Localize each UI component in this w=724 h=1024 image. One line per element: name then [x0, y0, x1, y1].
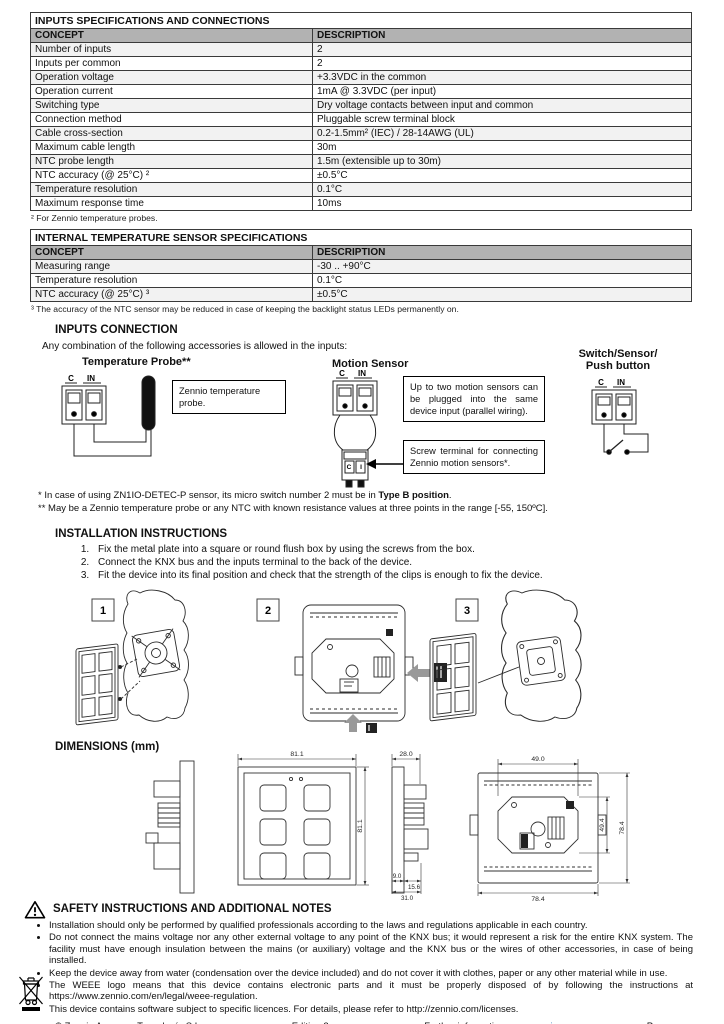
safety-bullets: Installation should only be performed by…	[40, 920, 693, 1015]
installation-step: Fit the device into its final position a…	[92, 570, 724, 581]
table-title: INTERNAL TEMPERATURE SENSOR SPECIFICATIO…	[31, 230, 692, 246]
figure-number: 1	[100, 605, 106, 617]
dimensions-drawing: 81.1 81.1 28.0 9.0 15.6 31.	[0, 733, 724, 901]
cell-description: Pluggable screw terminal block	[313, 113, 692, 127]
col-header-concept: CONCEPT	[31, 246, 313, 260]
warning-icon	[24, 900, 46, 919]
document-page: INPUTS SPECIFICATIONS AND CONNECTIONS CO…	[0, 0, 724, 1024]
col-header-description: DESCRIPTION	[313, 246, 692, 260]
svg-text:IN: IN	[358, 369, 366, 378]
dim-front-height: 81.1	[357, 819, 364, 832]
weee-bin-icon	[18, 973, 44, 1013]
cell-concept: Operation current	[31, 85, 313, 99]
installation-heading: INSTALLATION INSTRUCTIONS	[55, 528, 724, 540]
installation-figures-drawing: 1 2 3	[0, 583, 724, 733]
inputs-connection-diagrams: Temperature Probe** Motion Sensor Switch…	[0, 354, 724, 488]
safety-section: SAFETY INSTRUCTIONS AND ADDITIONAL NOTES…	[0, 901, 724, 1015]
cell-description: 0.2-1.5mm² (IEC) / 28-14AWG (UL)	[313, 127, 692, 141]
table-footnote: ² For Zennio temperature probes.	[31, 213, 724, 223]
dim-back-plate-width: 49.0	[531, 756, 544, 763]
note-arrow-icon	[366, 457, 403, 471]
inputs-spec-table: INPUTS SPECIFICATIONS AND CONNECTIONS CO…	[30, 12, 692, 211]
installation-steps: Fix the metal plate into a square or rou…	[0, 544, 724, 581]
cell-concept: Switching type	[31, 99, 313, 113]
cell-concept: Inputs per common	[31, 57, 313, 71]
svg-text:C: C	[68, 374, 74, 383]
cell-description: -30 .. +90°C	[313, 260, 692, 274]
motion-sensor-note-top: Up to two motion sensors can be plugged …	[403, 376, 545, 422]
cell-concept: NTC probe length	[31, 155, 313, 169]
cell-description: 1mA @ 3.3VDC (per input)	[313, 85, 692, 99]
svg-text:C: C	[347, 464, 352, 471]
dim-side-body: 15.6	[408, 884, 421, 891]
cell-concept: Maximum response time	[31, 197, 313, 211]
installation-step: Connect the KNX bus and the inputs termi…	[92, 557, 724, 568]
cell-description: 1.5m (extensible up to 30m)	[313, 155, 692, 169]
table-row: NTC accuracy (@ 25°C) ²±0.5°C	[31, 169, 692, 183]
cell-description: 0.1°C	[313, 274, 692, 288]
connection-footnote-1: * In case of using ZN1IO-DETEC-P sensor,…	[38, 490, 724, 501]
table-row: Measuring range-30 .. +90°C	[31, 260, 692, 274]
table-row: Cable cross-section0.2-1.5mm² (IEC) / 28…	[31, 127, 692, 141]
cell-description: 2	[313, 43, 692, 57]
table-row: Maximum response time10ms	[31, 197, 692, 211]
cell-description: 0.1°C	[313, 183, 692, 197]
switch-diagram: C IN	[588, 376, 668, 468]
svg-text:C: C	[598, 378, 604, 387]
table-row: Temperature resolution0.1°C	[31, 183, 692, 197]
table-row: Connection methodPluggable screw termina…	[31, 113, 692, 127]
col-header-description: DESCRIPTION	[313, 29, 692, 43]
dim-back-height: 78.4	[619, 821, 626, 834]
inputs-connection-heading: INPUTS CONNECTION	[55, 324, 724, 336]
figure-number: 2	[265, 605, 271, 617]
cell-concept: Temperature resolution	[31, 274, 313, 288]
svg-text:I: I	[360, 464, 362, 471]
cell-concept: NTC accuracy (@ 25°C) ³	[31, 288, 313, 302]
cell-concept: Number of inputs	[31, 43, 313, 57]
table-row: Switching typeDry voltage contacts betwe…	[31, 99, 692, 113]
table-row: NTC probe length1.5m (extensible up to 3…	[31, 155, 692, 169]
svg-text:C: C	[339, 369, 345, 378]
table-row: Inputs per common2	[31, 57, 692, 71]
col-header-concept: CONCEPT	[31, 29, 313, 43]
table-footnote: ³ The accuracy of the NTC sensor may be …	[31, 304, 724, 314]
dim-front-width: 81.1	[290, 751, 303, 758]
dimensions-section: DIMENSIONS (mm)	[0, 733, 724, 901]
svg-text:IN: IN	[87, 374, 95, 383]
cell-concept: Cable cross-section	[31, 127, 313, 141]
table-row: Maximum cable length30m	[31, 141, 692, 155]
table-title: INPUTS SPECIFICATIONS AND CONNECTIONS	[31, 13, 692, 29]
figure-number: 3	[464, 605, 470, 617]
dim-side-bezel: 9.0	[393, 873, 402, 880]
switch-sensor-title: Switch/Sensor/ Push button	[558, 348, 678, 372]
cell-concept: Operation voltage	[31, 71, 313, 85]
cell-concept: NTC accuracy (@ 25°C) ²	[31, 169, 313, 183]
table-row: Operation current1mA @ 3.3VDC (per input…	[31, 85, 692, 99]
internal-sensor-spec-table: INTERNAL TEMPERATURE SENSOR SPECIFICATIO…	[30, 229, 692, 302]
table-row: Operation voltage+3.3VDC in the common	[31, 71, 692, 85]
dim-side-depth: 28.0	[399, 751, 412, 758]
safety-bullet: Keep the device away from water (condens…	[49, 968, 693, 979]
cell-description: 2	[313, 57, 692, 71]
cell-description: 30m	[313, 141, 692, 155]
temperature-probe-note: Zennio temperature probe.	[172, 380, 286, 414]
table-row: NTC accuracy (@ 25°C) ³±0.5°C	[31, 288, 692, 302]
cell-description: 10ms	[313, 197, 692, 211]
dim-back-plate-height: 49.4	[599, 818, 606, 831]
cell-description: +3.3VDC in the common	[313, 71, 692, 85]
cell-concept: Maximum cable length	[31, 141, 313, 155]
cell-concept: Temperature resolution	[31, 183, 313, 197]
temperature-probe-title: Temperature Probe**	[82, 356, 191, 368]
cell-description: ±0.5°C	[313, 169, 692, 183]
table-row: Number of inputs2	[31, 43, 692, 57]
cell-concept: Connection method	[31, 113, 313, 127]
table-header-row: CONCEPT DESCRIPTION	[31, 29, 692, 43]
table-row: Temperature resolution0.1°C	[31, 274, 692, 288]
installation-figures: 1 2 3	[0, 583, 724, 733]
cell-concept: Measuring range	[31, 260, 313, 274]
safety-heading: SAFETY INSTRUCTIONS AND ADDITIONAL NOTES	[53, 903, 332, 915]
cell-description: Dry voltage contacts between input and c…	[313, 99, 692, 113]
svg-text:IN: IN	[617, 378, 625, 387]
table-header-row: CONCEPT DESCRIPTION	[31, 246, 692, 260]
safety-bullet: This device contains software subject to…	[49, 1004, 693, 1015]
connection-footnote-2: ** May be a Zennio temperature probe or …	[38, 503, 724, 514]
safety-bullet: The WEEE logo means that this device con…	[49, 980, 693, 1003]
cell-description: ±0.5°C	[313, 288, 692, 302]
motion-sensor-note-bottom: Screw terminal for connecting Zennio mot…	[403, 440, 545, 474]
safety-bullet: Do not connect the mains voltage nor any…	[49, 932, 693, 966]
installation-step: Fix the metal plate into a square or rou…	[92, 544, 724, 555]
safety-bullet: Installation should only be performed by…	[49, 920, 693, 931]
temperature-probe-diagram: C IN	[58, 372, 173, 472]
